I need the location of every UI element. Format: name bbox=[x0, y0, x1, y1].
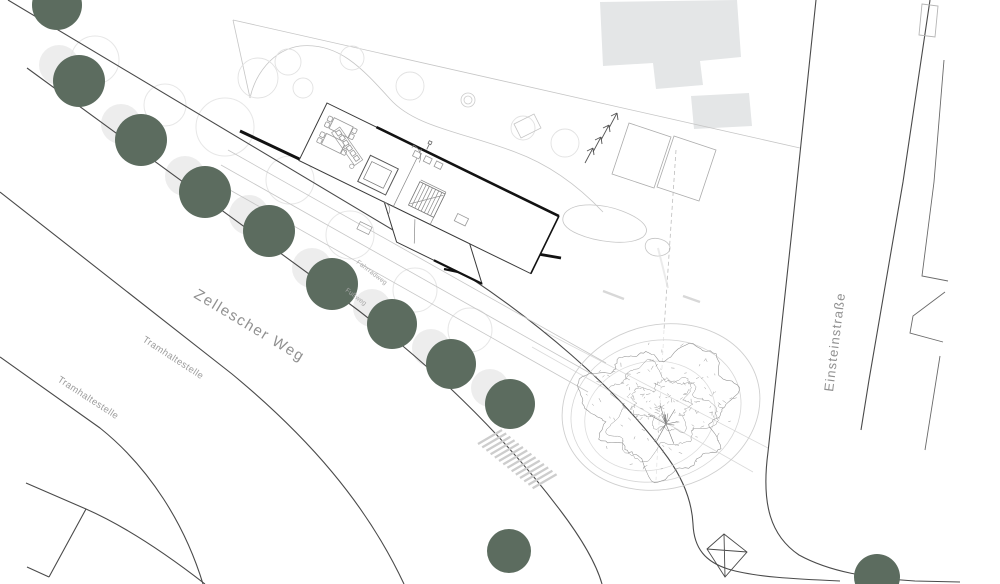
well-ring bbox=[464, 96, 472, 104]
site-boundary-line bbox=[233, 20, 250, 98]
tram-platform-line bbox=[0, 192, 404, 584]
tram-stop-label-2: Tramhaltestelle bbox=[55, 374, 120, 422]
building-mass-small bbox=[691, 93, 752, 129]
tree-crown-ring bbox=[555, 321, 757, 501]
street-tree bbox=[487, 529, 531, 573]
shrub-outline bbox=[238, 58, 278, 98]
site-plan-canvas: Zellescher Weg Tramhaltestelle Tramhalte… bbox=[0, 0, 1000, 584]
well-ring bbox=[461, 93, 475, 107]
shrub-outline bbox=[340, 46, 364, 70]
street-tree bbox=[854, 554, 900, 584]
path-edge-line bbox=[532, 347, 753, 472]
crosswalk-stripes bbox=[478, 430, 557, 488]
play-deck-outline bbox=[612, 123, 671, 188]
play-deck-outline bbox=[657, 136, 716, 201]
property-boundary-dashed bbox=[664, 150, 676, 330]
street-tree bbox=[179, 166, 231, 218]
adjacent-buildings bbox=[600, 0, 752, 129]
shrub-outline bbox=[396, 72, 424, 100]
crown-contour bbox=[629, 377, 693, 433]
street-tree bbox=[426, 339, 476, 389]
street-label-zellescher-weg: Zellescher Weg bbox=[191, 286, 308, 366]
bike-path-label: Fahrradweg bbox=[355, 259, 389, 287]
shrub-outline bbox=[293, 78, 313, 98]
street-tree bbox=[32, 0, 82, 30]
pond-outline bbox=[645, 238, 670, 256]
corner-drain-symbol bbox=[707, 534, 747, 577]
sidewalk-line bbox=[0, 357, 203, 584]
street-tree bbox=[367, 299, 417, 349]
parking-bay-marks bbox=[910, 4, 948, 450]
shrub-outline bbox=[551, 129, 579, 157]
plot-corner bbox=[27, 509, 86, 577]
large-tree bbox=[543, 302, 779, 512]
shrub-outline bbox=[275, 49, 301, 75]
side-street-east-edge bbox=[861, 0, 930, 430]
street-tree bbox=[53, 55, 105, 107]
street-tree bbox=[115, 114, 167, 166]
canopy-ring bbox=[196, 98, 254, 156]
entry-mat bbox=[357, 222, 372, 235]
flag-mark bbox=[425, 141, 432, 150]
street-tree bbox=[243, 205, 295, 257]
tree-crown-ring bbox=[572, 347, 727, 485]
tram-stop-label-1: Tramhaltestelle bbox=[140, 334, 205, 382]
site-plan: Zellescher Weg Tramhaltestelle Tramhalte… bbox=[0, 0, 1000, 584]
street-label-einsteinstrasse: Einsteinstraße bbox=[821, 291, 848, 392]
street-tree bbox=[485, 379, 535, 429]
street-tree bbox=[306, 258, 358, 310]
streets bbox=[0, 0, 960, 584]
side-street-west-edge bbox=[766, 0, 960, 582]
tiny-annotation bbox=[683, 296, 700, 302]
pond-outline bbox=[563, 205, 647, 242]
tiny-annotation bbox=[603, 291, 624, 299]
canopy-ring bbox=[326, 211, 374, 259]
building-plan bbox=[240, 93, 564, 306]
slope-arrows bbox=[585, 113, 618, 163]
sandbox-outline bbox=[514, 114, 541, 138]
building-mass-large bbox=[600, 0, 741, 89]
